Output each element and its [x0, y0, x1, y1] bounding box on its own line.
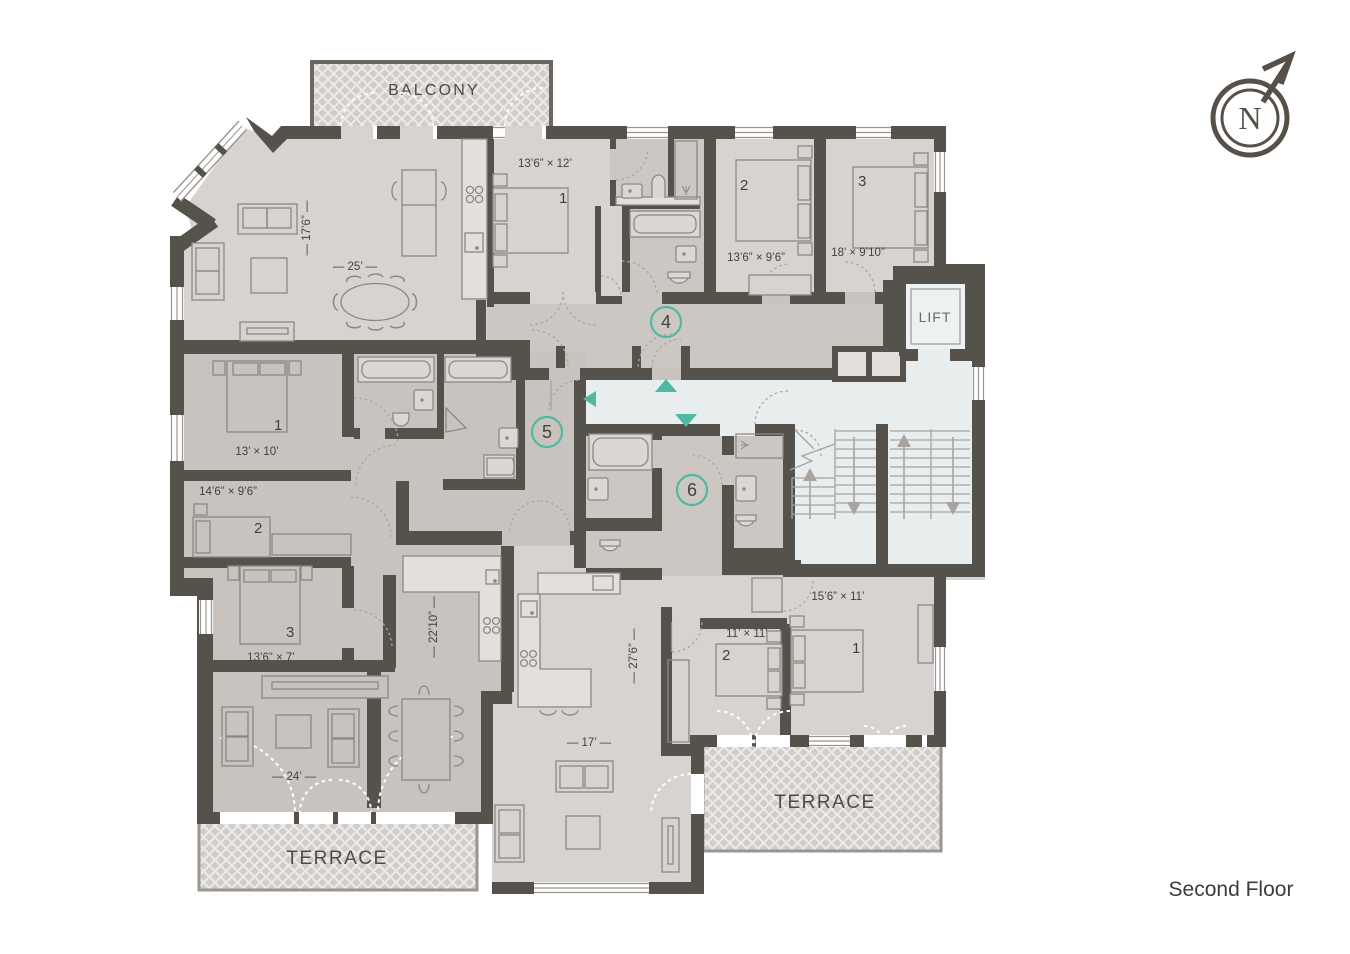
svg-text:5: 5	[542, 422, 552, 442]
svg-text:N: N	[1238, 100, 1261, 136]
svg-text:6: 6	[687, 480, 697, 500]
svg-text:13’ × 10’: 13’ × 10’	[235, 446, 278, 458]
svg-text:TERRACE: TERRACE	[286, 848, 387, 869]
svg-text:— 17’6” —: — 17’6” —	[301, 200, 313, 255]
svg-text:— 27’6” —: — 27’6” —	[628, 628, 640, 683]
svg-text:1: 1	[559, 190, 567, 207]
svg-text:2: 2	[254, 520, 262, 537]
svg-text:2: 2	[740, 177, 748, 194]
svg-text:3: 3	[858, 173, 866, 190]
svg-text:15’6” × 11’: 15’6” × 11’	[811, 591, 864, 603]
svg-text:— 25’ —: — 25’ —	[333, 261, 378, 273]
svg-text:13’6” × 9’6”: 13’6” × 9’6”	[727, 252, 785, 264]
svg-text:— 24’ —: — 24’ —	[272, 771, 317, 783]
svg-text:18’ × 9’10”: 18’ × 9’10”	[831, 247, 885, 259]
svg-text:LIFT: LIFT	[919, 309, 952, 325]
svg-text:BALCONY: BALCONY	[388, 82, 480, 99]
svg-text:TERRACE: TERRACE	[774, 792, 875, 813]
svg-text:Second Floor: Second Floor	[1169, 878, 1294, 901]
svg-text:2: 2	[722, 647, 730, 664]
svg-text:3: 3	[286, 624, 294, 641]
svg-text:14’6” × 9’6”: 14’6” × 9’6”	[199, 486, 257, 498]
svg-text:11’ × 11’: 11’ × 11’	[726, 628, 768, 640]
svg-text:4: 4	[661, 312, 671, 332]
svg-text:— 17’ —: — 17’ —	[567, 737, 612, 749]
svg-text:1: 1	[274, 417, 282, 434]
svg-text:13’6” × 7’: 13’6” × 7’	[247, 652, 295, 664]
svg-text:13’6” × 12’: 13’6” × 12’	[518, 158, 572, 170]
svg-text:— 22’10” —: — 22’10” —	[428, 596, 440, 658]
svg-text:1: 1	[852, 640, 860, 657]
